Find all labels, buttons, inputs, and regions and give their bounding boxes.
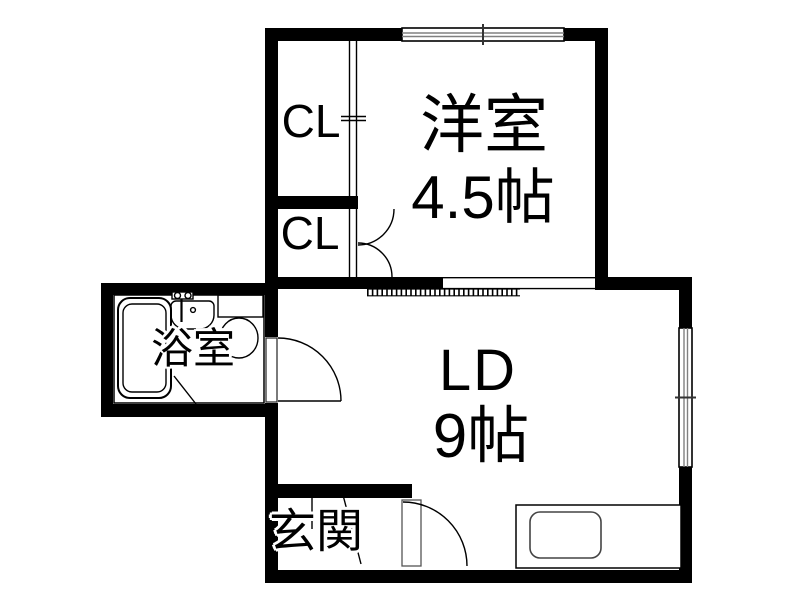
label-entrance: 玄関 [269, 508, 363, 555]
label-ld-size: 9帖 [433, 406, 529, 468]
front-door [402, 500, 467, 566]
floorplan-canvas: CL CL 洋室 4.5帖 LD 9帖 浴室 玄関 [0, 0, 800, 600]
kitchen-counter [516, 505, 681, 568]
label-ld-room: LD [439, 342, 517, 400]
label-bathroom: 浴室 [151, 328, 235, 370]
label-western-room: 洋室 [420, 93, 548, 157]
floorplan-linework [0, 0, 800, 600]
label-western-size: 4.5帖 [411, 168, 554, 228]
opening-western-ld [367, 278, 597, 289]
faucet [172, 292, 193, 322]
label-closet-upper: CL [282, 98, 341, 144]
bathroom-door-leaf [266, 338, 277, 402]
bathroom-door [266, 338, 341, 402]
bathroom-door-swing-arc [278, 338, 341, 401]
hatch-strip [367, 289, 520, 296]
window-top [402, 24, 564, 45]
front-door-leaf [402, 500, 421, 566]
label-closet-lower: CL [281, 210, 340, 256]
kitchen-sink [530, 512, 601, 558]
double-door-lower-closet [350, 209, 395, 277]
bathroom-step-line [174, 376, 196, 404]
sliding-door-upper-closet [341, 41, 366, 196]
window-right [675, 328, 696, 467]
